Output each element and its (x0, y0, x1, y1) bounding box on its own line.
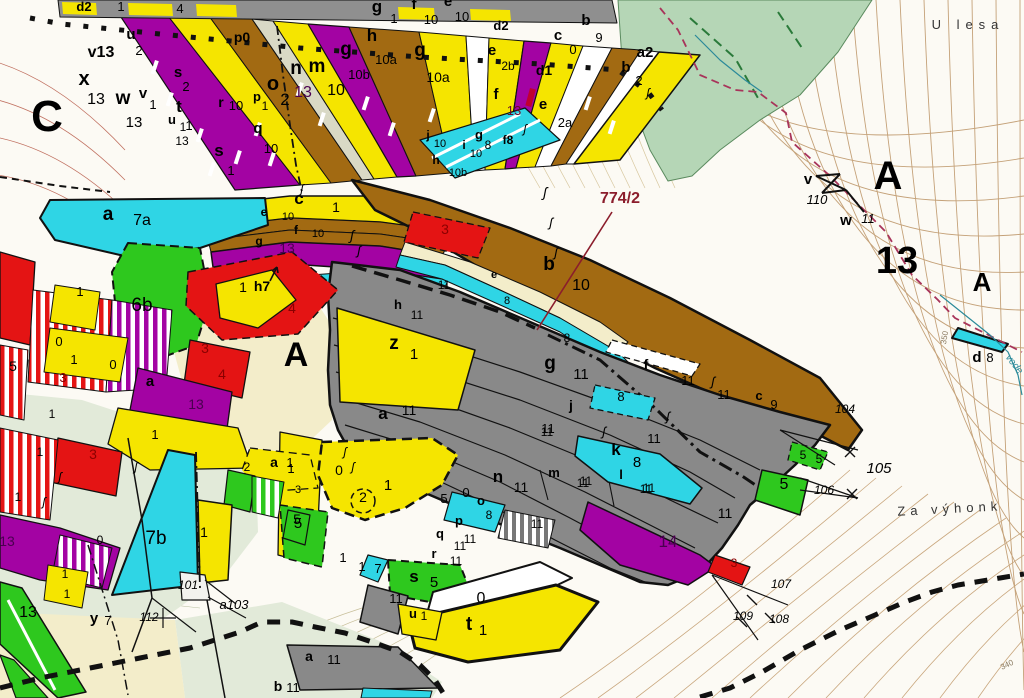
map-label: g (340, 39, 352, 60)
map-label: 1 (49, 407, 56, 421)
map-label: 10 (455, 9, 469, 24)
map-label: 1 (332, 199, 340, 215)
map-label: 10 (264, 141, 278, 156)
map-label: 1 (70, 352, 77, 367)
map-label: u (126, 26, 135, 43)
map-label: 3 (89, 446, 97, 462)
map-label: 0 (477, 590, 486, 607)
map-label: h (367, 26, 377, 45)
map-label: 1 (227, 163, 234, 178)
map-label: y (90, 610, 99, 627)
map-label: 13 (876, 240, 918, 282)
map-label: e (444, 0, 452, 10)
map-label: 13 (19, 604, 37, 621)
map-label: 11 (389, 591, 403, 606)
map-label: 5 (780, 476, 789, 493)
map-label: ʃ (547, 215, 555, 230)
map-label: s (214, 141, 223, 160)
map-label: 10 (470, 148, 482, 160)
map-label: 5 (800, 448, 807, 462)
map-label: h (432, 153, 439, 167)
map-label: t (466, 614, 473, 635)
map-label: 109 (733, 609, 753, 623)
map-label: g (544, 353, 556, 374)
map-label: 10 (282, 211, 294, 223)
map-label: 1 (151, 427, 158, 442)
map-label: 10b (449, 167, 467, 179)
map-label: 11 (450, 554, 463, 568)
map-label: a (378, 404, 388, 423)
map-label: 10a (375, 52, 397, 67)
map-label: 8 (633, 454, 641, 471)
map-label: a (305, 648, 313, 664)
map-label: 11 (640, 482, 653, 496)
map-label: d2 (76, 0, 91, 14)
map-label: 1 (64, 587, 71, 601)
map-label: a (146, 373, 155, 390)
map-label: s (409, 567, 418, 586)
map-label: 11 (411, 308, 424, 322)
map-label: 11 (681, 373, 695, 388)
map-label: d (972, 349, 981, 366)
map-label: 105 (866, 460, 892, 477)
map-label: 0 (97, 533, 104, 547)
map-label: 8 (485, 138, 492, 152)
map-label: o (477, 493, 485, 508)
map-label: 5 (816, 452, 823, 466)
map-label: 1 (185, 118, 192, 133)
map-label: e (539, 96, 547, 113)
map-label: 11 (454, 539, 467, 553)
map-label: 7b (145, 528, 166, 549)
map-label: 11 (541, 425, 554, 439)
map-label: 13 (126, 114, 143, 131)
map-label: q (253, 120, 262, 137)
map-label: 5 (9, 358, 17, 374)
map-label: 0 (569, 42, 576, 57)
map-label: 3 (731, 556, 738, 570)
map-label: p (455, 513, 463, 528)
map-label: 13 (188, 396, 204, 412)
map-label: Za výhonk (897, 498, 1003, 518)
map-label: 1 (239, 279, 247, 295)
map-label: l (619, 467, 623, 482)
map-label: 4 (176, 1, 183, 16)
map-label: 13 (175, 134, 189, 148)
map-label: d1 (536, 62, 553, 78)
map-label: g (414, 40, 426, 61)
map-label: a103 (220, 597, 250, 612)
map-label: 2a (558, 115, 573, 130)
map-label: 1 (15, 490, 22, 504)
map-label: g (475, 127, 483, 142)
map-label: 3 (59, 370, 66, 385)
map-label: 2 (635, 73, 642, 88)
map-label: C (31, 92, 63, 141)
map-label: 5 (440, 491, 447, 506)
map-label: v (804, 171, 813, 188)
map-label: p0 (234, 29, 251, 45)
map-label: n (290, 58, 302, 79)
map-label: 0 (462, 485, 469, 500)
map-label: e (491, 269, 497, 281)
map-label: 7 (104, 613, 111, 628)
map-label: 1 (410, 346, 418, 363)
map-label: 101 (178, 578, 198, 592)
map-label: b (543, 254, 555, 275)
map-label: 340 (999, 658, 1015, 672)
map-label: 11 (717, 387, 731, 402)
map-label: f8 (503, 133, 514, 147)
map-label: s (174, 64, 182, 81)
map-label: c (755, 388, 762, 403)
map-label: 2 (182, 79, 189, 94)
map-label: 11 (861, 211, 875, 226)
map-label: 112 (139, 610, 158, 624)
map-label: 0 (55, 334, 62, 349)
map-label: j (568, 397, 573, 413)
map-label: 1 (384, 477, 392, 494)
map-label: A (874, 154, 903, 198)
map-label: 8 (986, 350, 993, 365)
map-label: 9 (770, 397, 777, 412)
map-label: 13 (279, 240, 295, 256)
map-label: 13 (87, 91, 105, 108)
map-label: 7 (374, 561, 381, 576)
map-label: 9 (595, 30, 602, 45)
map-label: 108 (769, 612, 789, 626)
map-label: a (270, 454, 278, 470)
map-label: x (78, 68, 89, 90)
map-label: 2 (359, 489, 367, 505)
map-label: 2 (244, 460, 251, 474)
map-label: 1 (358, 559, 365, 574)
map-label: 0 (109, 357, 116, 372)
map-label: n (493, 467, 503, 486)
map-label: e (261, 205, 268, 219)
map-label: 4 (288, 300, 296, 316)
map-label: u (168, 112, 176, 127)
map-label: 13 (507, 103, 521, 118)
map-label: j (425, 128, 429, 142)
map-label: 2b (501, 59, 515, 73)
map-label: 1 (149, 97, 156, 112)
map-label: 110 (807, 192, 828, 207)
map-label: r (431, 546, 436, 561)
map-label: 1 (421, 609, 428, 623)
map-label: 2 (280, 90, 289, 109)
map-label: t (176, 97, 182, 116)
map-label: w (115, 88, 131, 109)
map-label: 1 (62, 567, 69, 581)
map-label: q (436, 526, 444, 541)
map-label: 1 (479, 622, 487, 639)
map-label: 0 (335, 462, 343, 478)
map-label: 350 (939, 330, 950, 345)
map-label: a (103, 204, 114, 225)
map-label: 2 (135, 43, 142, 58)
map-label: 11 (286, 680, 300, 695)
map: d214v13x13Cw13v1u2s2t1u113s1r10q10o2p0p1… (0, 0, 1024, 698)
map-label: k (611, 440, 621, 459)
map-label: 1 (262, 99, 269, 113)
map-label: 3 (441, 221, 449, 237)
map-label: 104 (835, 402, 855, 416)
map-label: 10a (426, 69, 450, 85)
map-label: 10 (572, 277, 590, 294)
map-label: 1 (339, 550, 346, 565)
map-label: i (462, 138, 465, 152)
map-label: b (581, 12, 590, 29)
map-label: a2 (637, 44, 654, 61)
map-label: 10 (434, 138, 446, 150)
map-label: 10b (348, 67, 370, 82)
map-label: 11 (573, 366, 589, 383)
map-label: v (139, 85, 148, 102)
map-label: 13 (294, 84, 312, 101)
map-label: o (267, 73, 279, 95)
map-label: p (253, 89, 261, 104)
map-label: 8 (617, 389, 624, 404)
map-canvas[interactable]: d214v13x13Cw13v1u2s2t1u113s1r10q10o2p0p1… (0, 0, 1024, 698)
map-label: 1 (287, 461, 294, 476)
map-label: 11 (327, 652, 341, 667)
map-label: v13 (88, 44, 115, 61)
map-label: 3 (201, 340, 209, 356)
map-label: 11 (531, 517, 544, 531)
map-label: 13 (0, 533, 15, 549)
map-label: 11 (647, 431, 661, 446)
map-label: 11 (438, 278, 451, 292)
map-label: 106 (814, 483, 834, 497)
map-label: f (644, 356, 649, 372)
map-label: 8 (486, 508, 493, 522)
map-label: d2 (493, 18, 508, 33)
map-label: A (973, 267, 992, 297)
map-label: 8 (564, 331, 571, 345)
map-label: 10 (229, 98, 243, 113)
map-label: g (255, 234, 262, 248)
map-label: 11 (402, 402, 417, 418)
map-label: 10 (327, 82, 345, 99)
map-label: 10 (424, 12, 438, 27)
map-label: b (621, 59, 630, 76)
map-label: c (554, 27, 562, 44)
map-label: 5 (430, 574, 438, 591)
map-label: 4 (218, 366, 226, 382)
map-label: w (839, 212, 852, 229)
map-label: 1 (37, 445, 44, 459)
map-label: ʃ (541, 184, 549, 200)
map-label: 1 (76, 284, 83, 299)
map-label: 107 (771, 577, 792, 591)
map-label: u (409, 606, 417, 621)
map-label: b (274, 678, 283, 694)
map-label: 774/2 (600, 190, 640, 207)
map-label: m (548, 465, 560, 480)
map-label: 11 (514, 479, 529, 495)
map-label: 3 (295, 484, 301, 496)
map-label: 1 (180, 120, 187, 134)
map-label: A (284, 336, 309, 374)
map-label: 1 (117, 0, 124, 14)
map-label: U lesa (932, 17, 1005, 32)
map-label: m (309, 56, 326, 77)
map-label: 10 (312, 228, 324, 240)
map-label: 11 (718, 505, 733, 521)
map-label: 1 (200, 524, 208, 540)
map-label: 1 (390, 11, 397, 26)
map-label: g (372, 0, 382, 16)
map-label: 6b (131, 295, 152, 316)
map-label: e (488, 42, 496, 59)
map-label: h (394, 297, 402, 312)
map-label: 8 (504, 295, 510, 307)
map-label: 5 (294, 515, 302, 532)
map-label: h7 (254, 278, 271, 294)
map-label: 11 (577, 476, 590, 490)
map-label: z (389, 333, 399, 354)
map-label: 14 (659, 532, 678, 551)
map-label: 7a (133, 212, 151, 229)
map-label: r (218, 94, 224, 110)
